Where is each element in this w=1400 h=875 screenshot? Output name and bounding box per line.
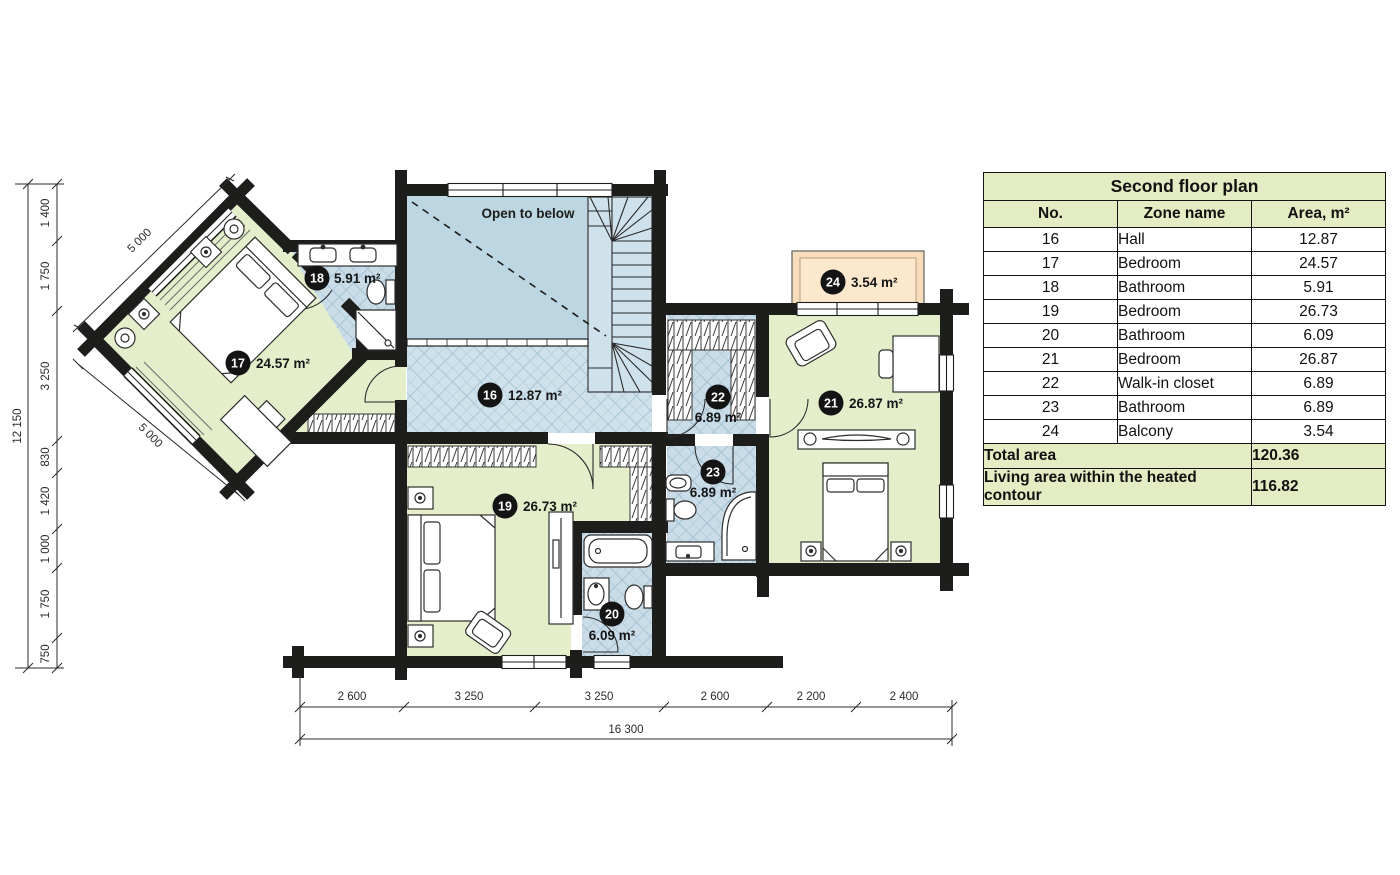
svg-text:1 000: 1 000 [40,535,52,564]
nightstand-19-b [408,625,433,647]
dim-left-total: 12 150 [12,408,24,443]
vanity-18 [298,244,397,266]
table-row: 24 Balcony 3.54 [984,420,1386,444]
svg-text:22: 22 [711,391,725,405]
nightstand-19-a [408,487,433,509]
svg-text:2 400: 2 400 [890,691,919,703]
table-row: 22 Walk-in closet 6.89 [984,372,1386,396]
wardrobe-22-left [668,350,692,420]
svg-text:26.73 m²: 26.73 m² [523,499,578,514]
bathtub-20 [584,535,652,567]
svg-text:6.89 m²: 6.89 m² [690,485,737,500]
table-total-row: Total area 120.36 [984,444,1386,469]
window-right-2 [940,485,954,518]
svg-text:12.87 m²: 12.87 m² [508,388,563,403]
svg-text:21: 21 [824,397,838,411]
svg-text:1 400: 1 400 [40,199,52,228]
staircase [588,197,652,392]
svg-text:1 750: 1 750 [40,590,52,619]
svg-text:2 200: 2 200 [797,691,826,703]
window-balcony [797,303,918,316]
railing [407,339,588,346]
table-title-row: Second floor plan [984,173,1386,201]
window-bottom-1 [502,656,566,669]
dim-diag-bottom: 5 000 [136,421,165,450]
table-living-row: Living area within the heated contour 11… [984,469,1386,506]
floor-plan-drawing: Open to below 16 12.87 m² 17 24.57 m² 18… [0,0,980,875]
svg-text:3 250: 3 250 [585,691,614,703]
svg-text:3 250: 3 250 [455,691,484,703]
svg-text:3 250: 3 250 [40,362,52,391]
svg-text:750: 750 [40,644,52,663]
living-area-label: Living area within the heated contour [984,469,1252,506]
svg-text:18: 18 [310,272,324,286]
bed-21 [823,463,888,561]
wardrobe-22-top [668,320,755,350]
table-row: 21 Bedroom 26.87 [984,348,1386,372]
col-header-area: Area, m² [1252,201,1386,228]
wardrobe-mirror-19 [549,512,573,624]
wall-lamp-17-a [224,219,244,239]
svg-text:24: 24 [826,276,840,290]
svg-text:24.57 m²: 24.57 m² [256,356,311,371]
sink-23 [666,475,691,491]
svg-text:3.54 m²: 3.54 m² [851,275,898,290]
svg-text:17: 17 [231,357,245,371]
svg-text:830: 830 [40,447,52,466]
table-row: 17 Bedroom 24.57 [984,252,1386,276]
total-area-label: Total area [984,444,1252,469]
col-header-no: No. [984,201,1118,228]
dresser-21 [798,430,915,449]
svg-text:20: 20 [605,608,619,622]
svg-text:2 600: 2 600 [701,691,730,703]
toilet-20 [625,585,652,609]
dim-bottom-total: 16 300 [608,724,643,736]
floor-plan-page: Open to below 16 12.87 m² 17 24.57 m² 18… [0,0,1400,875]
svg-text:1 420: 1 420 [40,487,52,516]
col-header-zone: Zone name [1118,201,1252,228]
svg-text:1 750: 1 750 [40,262,52,291]
wardrobe-corridor [308,414,398,433]
open-to-below-label: Open to below [482,206,575,221]
nightstand-21-a [801,542,821,561]
table-row: 18 Bathroom 5.91 [984,276,1386,300]
svg-text:16: 16 [483,389,497,403]
wardrobe-19-top-right [600,446,652,467]
table-row: 19 Bedroom 26.73 [984,300,1386,324]
total-area-value: 120.36 [1252,444,1386,469]
svg-text:23: 23 [706,466,720,480]
area-table: Second floor plan No. Zone name Area, m²… [983,172,1386,506]
window-right-1 [940,355,954,391]
wall-lamp-17-b [115,328,135,348]
table-header-row: No. Zone name Area, m² [984,201,1386,228]
table-title: Second floor plan [984,173,1386,201]
window-top [448,184,612,197]
svg-text:26.87 m²: 26.87 m² [849,396,904,411]
svg-text:2 600: 2 600 [338,691,367,703]
svg-text:6.09 m²: 6.09 m² [589,628,636,643]
svg-text:19: 19 [498,500,512,514]
table-row: 23 Bathroom 6.89 [984,396,1386,420]
toilet-23 [666,499,696,521]
living-area-value: 116.82 [1252,469,1386,506]
wardrobe-19-top-left [408,446,536,467]
svg-text:5.91 m²: 5.91 m² [334,271,381,286]
shower-18 [356,310,396,350]
table-row: 20 Bathroom 6.09 [984,324,1386,348]
table-row: 16 Hall 12.87 [984,228,1386,252]
dim-diag-top: 5 000 [125,226,154,255]
svg-text:6.89 m²: 6.89 m² [695,410,742,425]
window-bottom-2 [594,656,630,669]
bed-19 [408,515,495,621]
wardrobe-19-right [630,467,652,523]
nightstand-21-b [891,542,911,561]
vanity-23 [666,542,714,561]
